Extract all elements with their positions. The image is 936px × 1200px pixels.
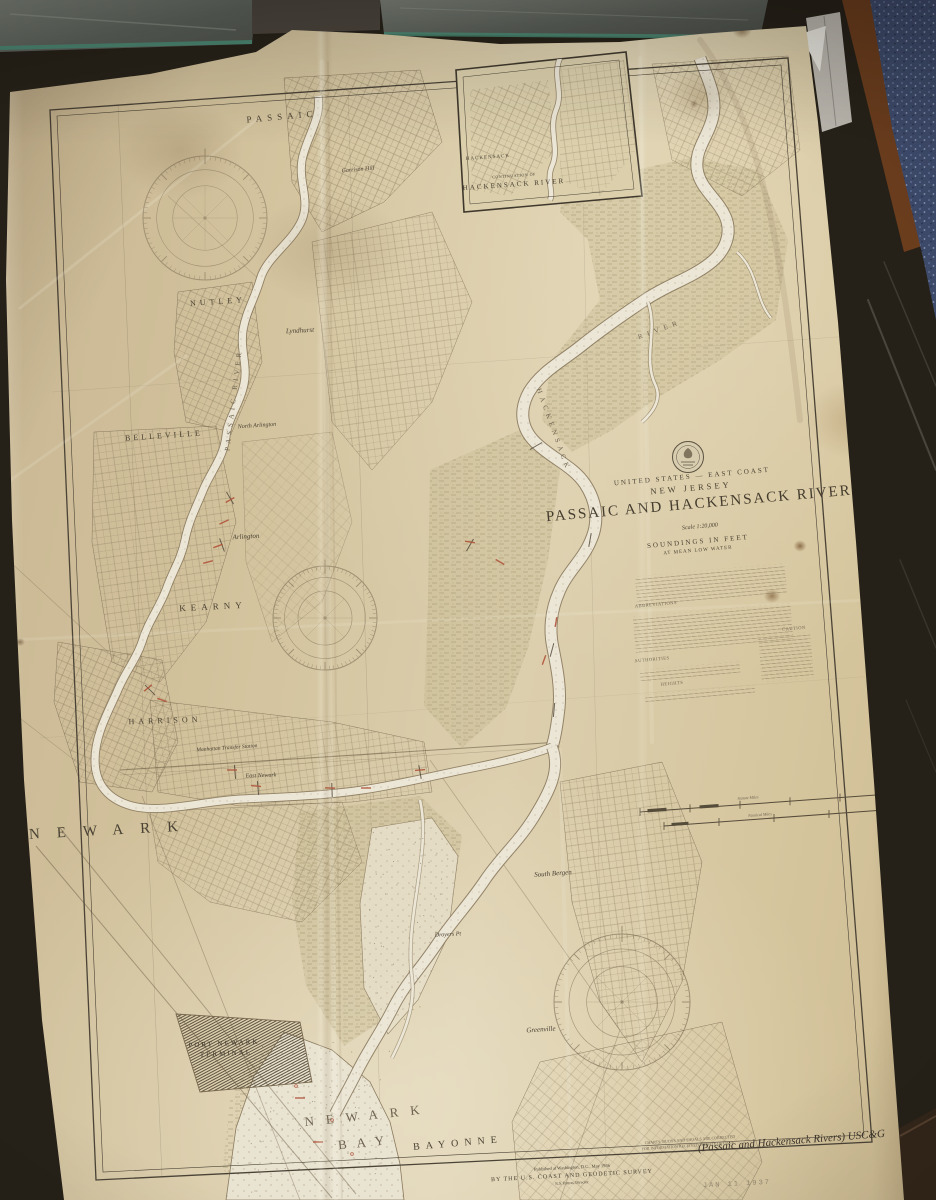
- glass-pane-left: [0, 0, 256, 52]
- shelf-gap: [252, 0, 380, 34]
- label-east-newark: East Newark: [245, 772, 276, 779]
- chart-paper: PASSAIC Garrison Hill NUTLEY Lyndhurst B…: [0, 0, 936, 1200]
- label-arlington: Arlington: [232, 533, 259, 541]
- label-lyndhurst: Lyndhurst: [286, 327, 315, 335]
- glass-pane-center: [380, 0, 768, 38]
- uscgs-seal-icon: [673, 442, 704, 473]
- compass-rose-icon: [143, 149, 267, 280]
- photograph-of-nautical-chart: PASSAIC Garrison Hill NUTLEY Lyndhurst B…: [0, 0, 936, 1200]
- map-linework-svg: [0, 0, 936, 1200]
